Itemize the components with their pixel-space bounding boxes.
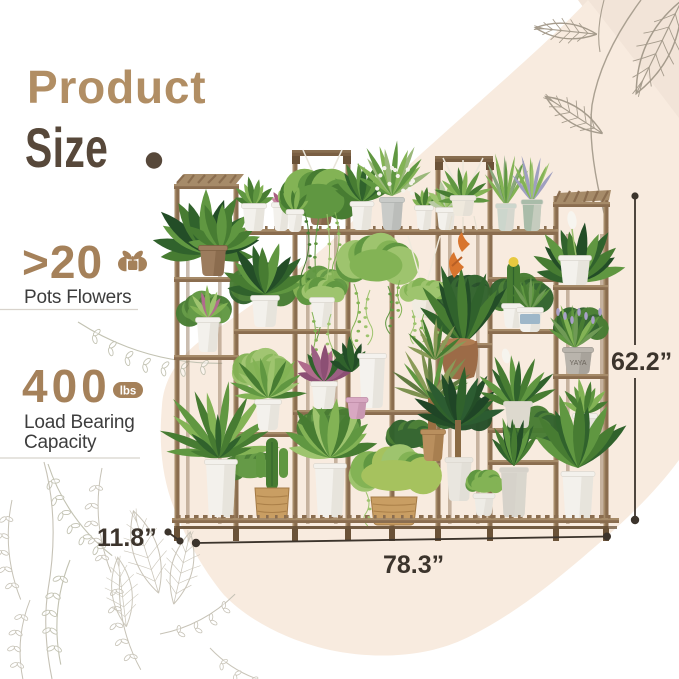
- svg-text:lbs: lbs: [120, 386, 137, 398]
- svg-text:>20: >20: [22, 236, 103, 288]
- svg-text:400: 400: [22, 360, 111, 412]
- svg-text:Load Bearing: Load Bearing: [24, 412, 135, 433]
- svg-text:YAYA: YAYA: [569, 360, 586, 367]
- svg-text:Size: Size: [25, 118, 108, 180]
- svg-text:62.2”: 62.2”: [611, 348, 672, 376]
- svg-text:78.3”: 78.3”: [383, 551, 444, 579]
- svg-text:Pots Flowers: Pots Flowers: [24, 287, 131, 308]
- svg-text:11.8”: 11.8”: [97, 524, 157, 552]
- svg-text:Capacity: Capacity: [24, 432, 97, 453]
- svg-text:Product: Product: [27, 61, 206, 113]
